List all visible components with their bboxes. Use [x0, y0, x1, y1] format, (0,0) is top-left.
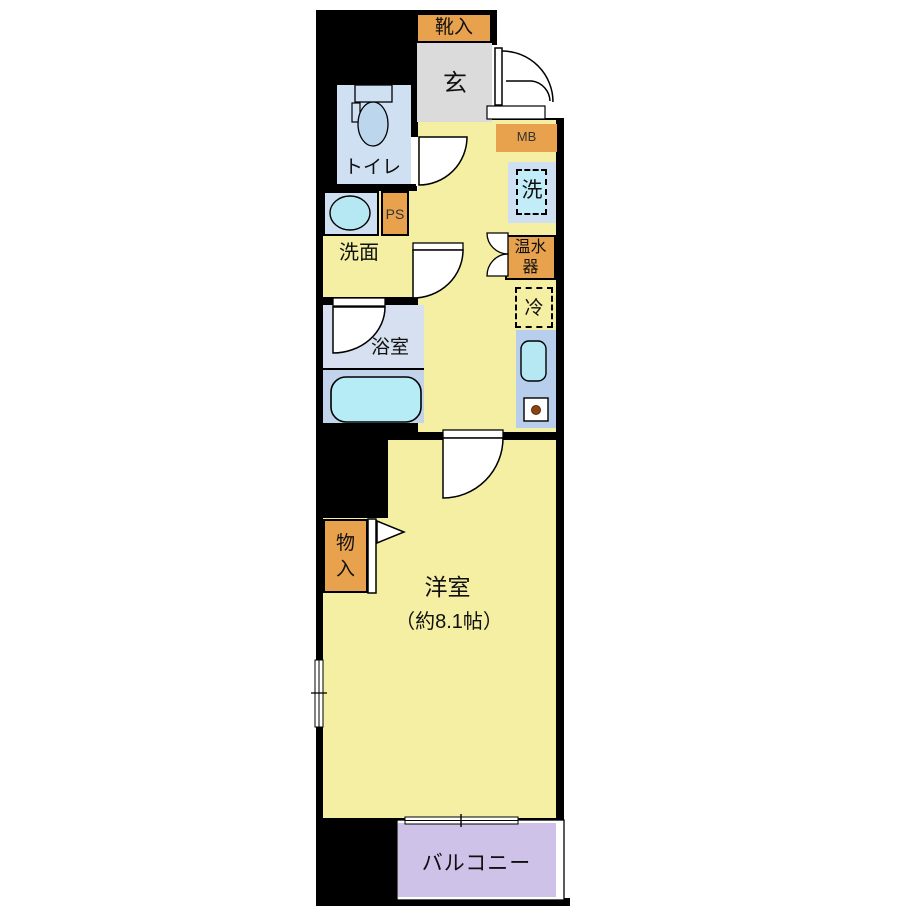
label-washroom: 洗面 [323, 242, 395, 265]
kitchen-sink [521, 341, 546, 381]
toilet-tank [355, 85, 392, 102]
entrance-step [487, 106, 545, 119]
label-western-room: 洋室 [390, 574, 505, 600]
label-closet: 物入 [323, 531, 368, 583]
vanity-sink [330, 196, 370, 230]
floorplan-canvas: 靴入 玄 MB トイレ PS 洗面 洗 温水器 冷 浴室 物入 洋室 （約8.1… [0, 0, 910, 910]
label-closet-l1: 物 [336, 533, 355, 554]
washroom-door-leaf [413, 243, 463, 250]
label-toilet: トイレ [330, 157, 415, 179]
label-bathroom: 浴室 [350, 337, 430, 359]
kitchen-stove-burner [532, 406, 541, 415]
label-balcony: バルコニー [397, 852, 556, 876]
label-entrance: 玄 [418, 70, 492, 98]
toilet-bowl [358, 102, 388, 146]
label-western-room-size: （約8.1帖） [370, 611, 528, 634]
label-water-heater-l2: 器 [522, 259, 538, 276]
label-meter-box: MB [496, 130, 557, 145]
bathtub [331, 377, 421, 422]
room-door-arc [443, 438, 503, 498]
entrance-door-leaf [495, 48, 502, 105]
entrance-door-arc [502, 51, 553, 102]
label-washing-machine: 洗 [508, 179, 556, 203]
label-shoe-cabinet: 靴入 [416, 17, 492, 39]
washroom-door-arc [413, 250, 463, 298]
symbols-overlay [0, 0, 910, 910]
closet-door-triangle [377, 521, 404, 543]
toilet-door [419, 137, 467, 185]
room-door-leaf [443, 430, 503, 438]
label-refrigerator: 冷 [515, 298, 553, 320]
entrance-subdoor-arc [506, 81, 550, 101]
label-water-heater: 温水器 [505, 238, 556, 278]
closet-door-strip [368, 519, 376, 593]
label-water-heater-l1: 温水 [514, 239, 546, 256]
label-pipe-space: PS [381, 206, 409, 222]
bathroom-door-leaf [333, 298, 385, 306]
label-closet-l2: 入 [336, 559, 355, 580]
